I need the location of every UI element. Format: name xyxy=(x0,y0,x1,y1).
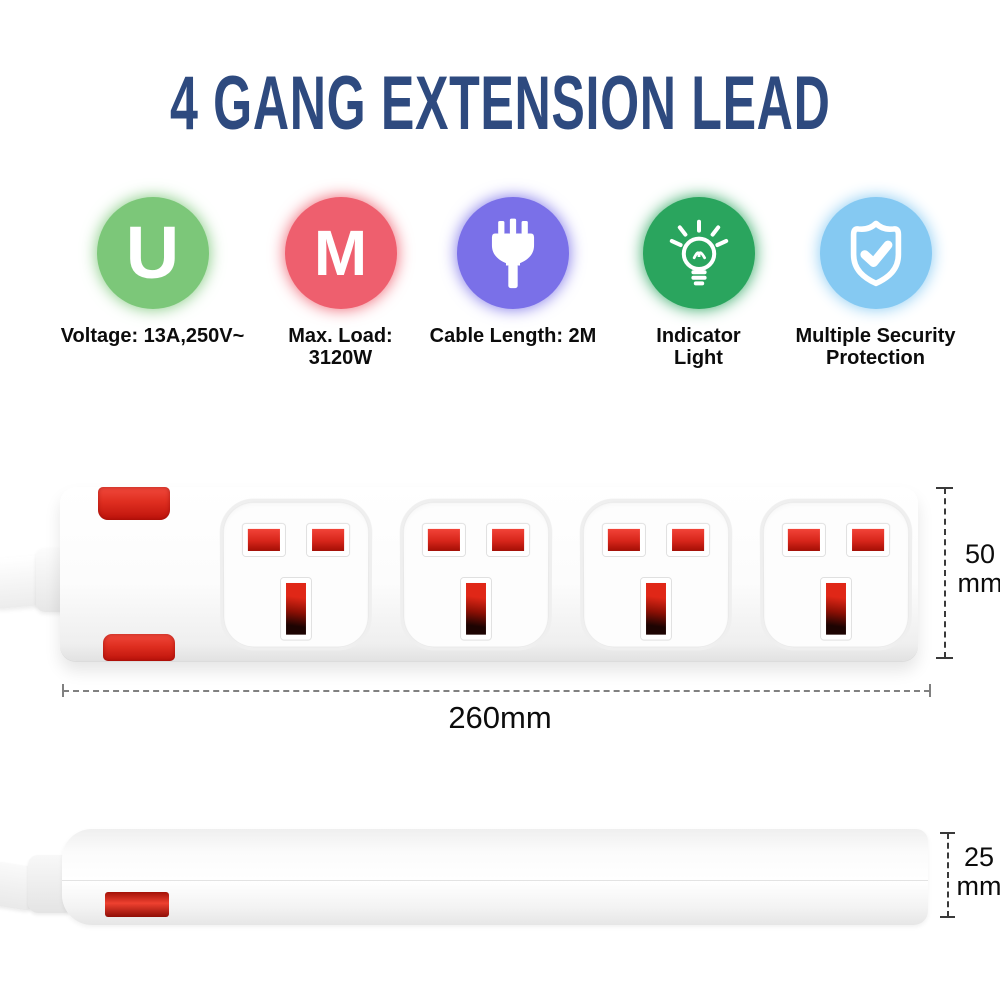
feature-card-max-load: M Max. Load: 3120W xyxy=(258,197,423,369)
uk-socket xyxy=(580,499,733,651)
feature-label-max-load: Max. Load: 3120W xyxy=(288,325,392,369)
feature-card-security: Multiple Security Protection xyxy=(773,197,978,369)
product-front-view xyxy=(60,487,918,661)
dimension-width-tick-right xyxy=(929,684,931,697)
indicator-switch-top xyxy=(98,487,170,520)
feature-label-cable-length: Cable Length: 2M xyxy=(430,325,597,347)
pin-slot-right xyxy=(487,524,529,556)
feature-label-indicator-light: Indicator Light xyxy=(656,325,740,369)
indicator-switch-side xyxy=(105,892,169,917)
dimension-width-line xyxy=(63,690,930,692)
m-letter-glyph: M xyxy=(314,221,367,285)
pin-slot-left xyxy=(423,524,465,556)
product-side-view xyxy=(62,829,928,925)
page-title: 4 GANG EXTENSION LEAD xyxy=(170,60,830,147)
bulb-icon xyxy=(643,197,755,309)
pin-slot-earth xyxy=(641,578,671,640)
side-view-top-face xyxy=(62,829,928,881)
dimension-depth-label: 25 mm xyxy=(953,843,1000,901)
u-letter-icon: U xyxy=(97,197,209,309)
pin-slot-right xyxy=(307,524,349,556)
uk-socket xyxy=(760,499,913,651)
indicator-switch-bottom xyxy=(103,634,175,661)
dimension-depth-line xyxy=(947,833,949,917)
dimension-width-tick-left xyxy=(62,684,64,697)
dimension-depth-tick-top xyxy=(940,832,955,834)
pin-slot-left xyxy=(603,524,645,556)
side-view-bottom-face xyxy=(62,881,928,925)
dimension-height-label: 50 mm xyxy=(954,540,1000,598)
shield-check-icon xyxy=(820,197,932,309)
dimension-height-tick-top xyxy=(936,487,953,489)
plug-icon xyxy=(457,197,569,309)
uk-socket xyxy=(400,499,553,651)
u-letter-glyph: U xyxy=(126,216,179,290)
pin-slot-right xyxy=(847,524,889,556)
feature-card-voltage: U Voltage: 13A,250V~ xyxy=(35,197,270,347)
pin-slot-left xyxy=(783,524,825,556)
dimension-height-tick-bottom xyxy=(936,657,953,659)
pin-slot-earth xyxy=(821,578,851,640)
dimension-width-label: 260mm xyxy=(380,700,620,736)
dimension-height-line xyxy=(944,488,946,658)
pin-slot-left xyxy=(243,524,285,556)
pin-slot-earth xyxy=(461,578,491,640)
pin-slot-earth xyxy=(281,578,311,640)
m-letter-icon: M xyxy=(285,197,397,309)
feature-card-cable-length: Cable Length: 2M xyxy=(418,197,608,347)
feature-label-voltage: Voltage: 13A,250V~ xyxy=(61,325,245,347)
socket-row xyxy=(220,499,912,651)
pin-slot-right xyxy=(667,524,709,556)
product-infographic: 4 GANG EXTENSION LEAD U Voltage: 13A,250… xyxy=(0,0,1000,1000)
dimension-depth-tick-bottom xyxy=(940,916,955,918)
uk-socket xyxy=(220,499,373,651)
feature-card-indicator-light: Indicator Light xyxy=(616,197,781,369)
feature-label-security: Multiple Security Protection xyxy=(795,325,955,369)
